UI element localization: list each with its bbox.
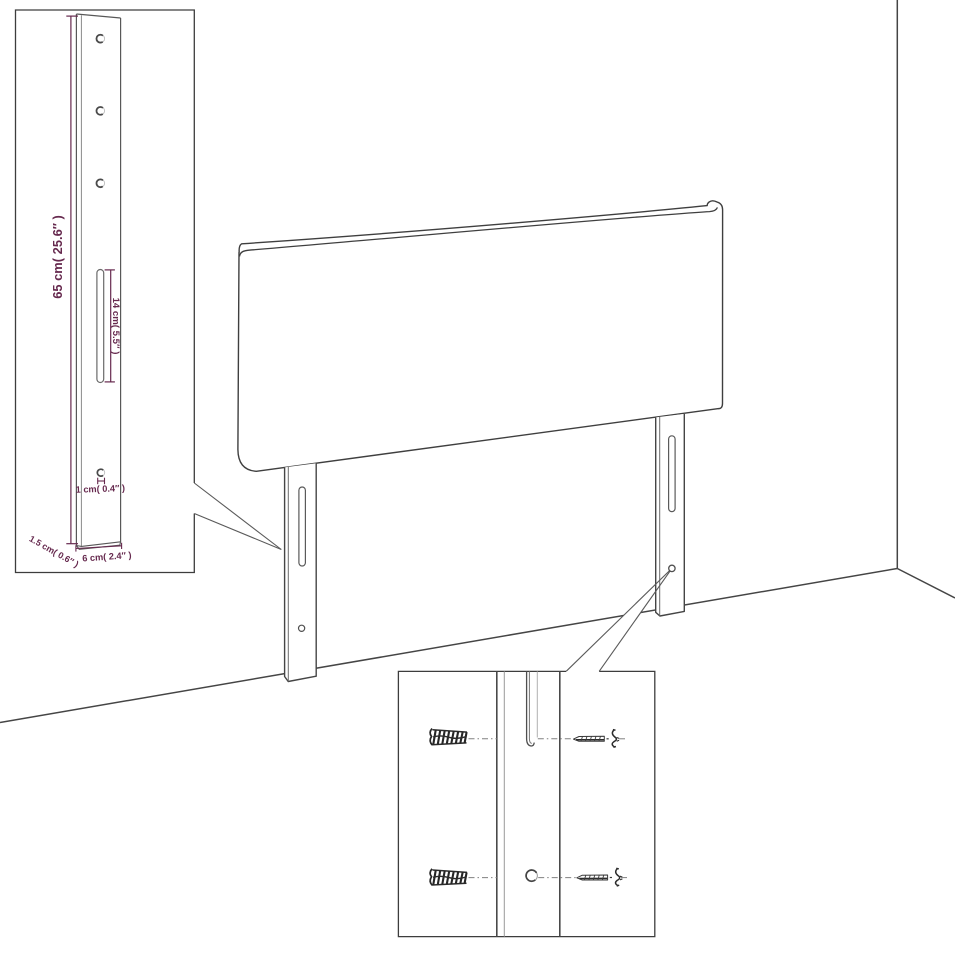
svg-text:65 cm( 25.6″ ): 65 cm( 25.6″ ) — [50, 215, 65, 299]
svg-text:1 cm( 0.4″ ): 1 cm( 0.4″ ) — [76, 483, 126, 495]
svg-text:14 cm( 5.5″ ): 14 cm( 5.5″ ) — [110, 298, 121, 355]
